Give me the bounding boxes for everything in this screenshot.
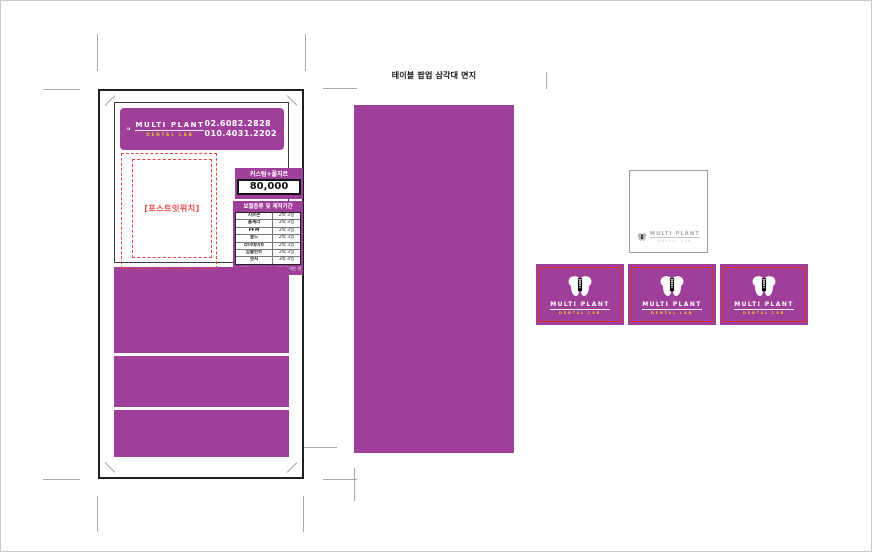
schedule-title: 보철종류 및 제작기간	[235, 203, 301, 212]
cell-period: 2박 3일	[273, 235, 300, 241]
crop-mark	[304, 447, 337, 448]
cell-period: 2박 3일	[273, 213, 300, 219]
purple-panel-middle	[114, 356, 289, 407]
cell-period: 2박 3일	[273, 220, 300, 226]
cell-type: 덴처	[236, 257, 273, 263]
cell-type: PFM	[236, 228, 273, 234]
brand-subtitle: DENTAL LAB	[658, 239, 692, 243]
crop-mark	[323, 479, 357, 480]
phone-line-1: 02.6082.2828	[204, 119, 271, 129]
cell-period: 3박 4일	[273, 257, 300, 263]
phone-line-2: 010.4031.2202	[204, 129, 277, 139]
table-row: 라미네이트 2박 3일	[236, 243, 300, 250]
cell-type: 지르콘	[236, 213, 273, 219]
artboard-title: 테이블 팝업 삼각대 면지	[354, 70, 514, 81]
package-layout-panel: MULTI PLANT DENTAL LAB 02.6082.2828 010.…	[98, 89, 304, 479]
tooth-implant-logo-icon	[751, 275, 777, 299]
brand-name: MULTI PLANT	[135, 121, 204, 131]
tooth-implant-logo-icon	[637, 233, 647, 242]
table-row: PFM 2박 3일	[236, 228, 300, 235]
brand-name: MULTI PLANT	[734, 301, 793, 310]
cell-type: 올세라	[236, 220, 273, 226]
crop-mark	[303, 496, 304, 532]
cell-period: 2박 3일	[273, 250, 300, 256]
brand-text-block: MULTI PLANT DENTAL LAB	[135, 121, 204, 137]
cell-type: 임플란트	[236, 250, 273, 256]
crop-mark	[97, 34, 98, 71]
tooth-implant-logo-icon	[659, 275, 685, 299]
tooth-implant-logo-icon	[567, 275, 593, 299]
brand-header: MULTI PLANT DENTAL LAB 02.6082.2828 010.…	[120, 108, 284, 150]
fold-mark	[105, 462, 116, 473]
price-box: 커스텀+풀지르 80,000	[235, 168, 303, 199]
tripod-back-panel	[354, 105, 514, 453]
fold-mark	[287, 462, 298, 473]
brand-name: MULTI PLANT	[642, 301, 701, 310]
table-row: 골드 2박 3일	[236, 235, 300, 242]
logo-card-2: MULTI PLANT DENTAL LAB	[628, 264, 716, 325]
table-row: 임플란트 2박 3일	[236, 250, 300, 257]
brand-subtitle: DENTAL LAB	[651, 311, 693, 315]
brand-subtitle: DENTAL LAB	[146, 132, 194, 137]
postit-label: [포스트잇위치]	[144, 203, 199, 214]
table-row: 덴처 3박 4일	[236, 257, 300, 263]
table-row: 지르콘 2박 3일	[236, 213, 300, 220]
crop-mark	[354, 468, 355, 501]
brand-name: MULTI PLANT	[550, 301, 609, 310]
cell-type: 골드	[236, 235, 273, 241]
brand-subtitle: DENTAL LAB	[559, 311, 601, 315]
cell-period: 2박 3일	[273, 228, 300, 234]
crop-mark	[305, 34, 306, 71]
crop-mark	[97, 496, 98, 532]
faint-brand-text: MULTI PLANT DENTAL LAB	[650, 231, 700, 243]
brand-subtitle: DENTAL LAB	[743, 311, 785, 315]
price-label: 커스텀+풀지르	[237, 170, 301, 179]
logo-card-3: MULTI PLANT DENTAL LAB	[720, 264, 808, 325]
table-row: 올세라 2박 3일	[236, 220, 300, 227]
logo-card-1: MULTI PLANT DENTAL LAB	[536, 264, 624, 325]
postit-placement-area: [포스트잇위치]	[132, 159, 212, 258]
design-proof-canvas: MULTI PLANT DENTAL LAB 02.6082.2828 010.…	[0, 0, 872, 552]
crop-mark	[546, 72, 547, 89]
brand-name: MULTI PLANT	[650, 231, 700, 238]
cell-type: 라미네이트	[236, 243, 273, 249]
production-schedule-table: 보철종류 및 제작기간 지르콘 2박 3일 올세라 2박 3일 PFM 2박 3…	[233, 201, 303, 275]
crop-mark	[43, 89, 80, 90]
tooth-implant-logo-icon	[127, 116, 130, 142]
schedule-grid: 지르콘 2박 3일 올세라 2박 3일 PFM 2박 3일 골드 2박 3일	[235, 212, 301, 265]
crop-mark	[323, 88, 357, 89]
faint-logo-row: MULTI PLANT DENTAL LAB	[637, 231, 700, 243]
cell-period: 2박 3일	[273, 243, 300, 249]
phone-numbers: 02.6082.2828 010.4031.2202	[204, 119, 277, 139]
crop-mark	[43, 479, 80, 480]
purple-panel-large	[114, 267, 289, 353]
price-value: 80,000	[237, 179, 301, 195]
purple-panel-bottom	[114, 410, 289, 457]
card-back-white: MULTI PLANT DENTAL LAB	[629, 170, 708, 253]
